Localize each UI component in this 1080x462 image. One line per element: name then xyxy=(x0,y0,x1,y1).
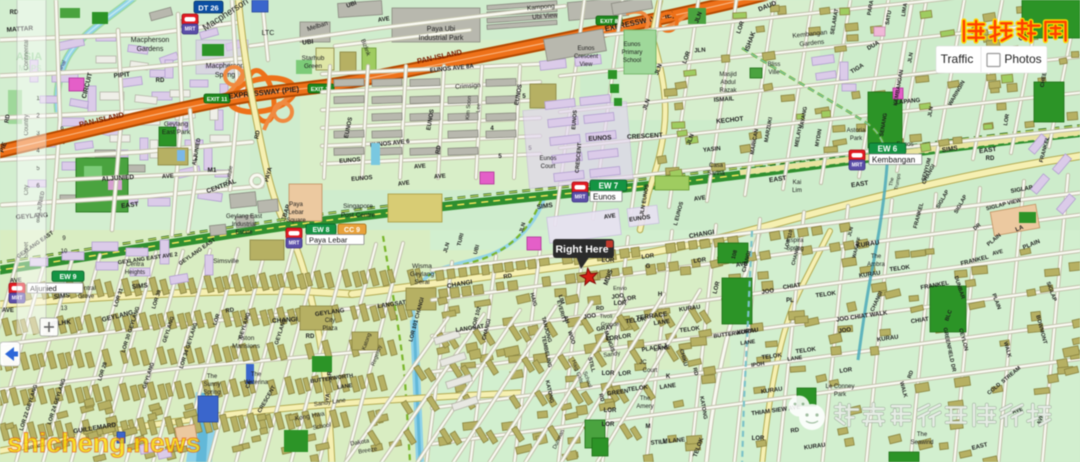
svg-text:EW 9: EW 9 xyxy=(59,274,76,281)
svg-text:Sunny: Sunny xyxy=(203,382,220,388)
svg-text:Photos: Photos xyxy=(1004,52,1041,66)
svg-text:RD: RD xyxy=(596,306,604,312)
svg-text:LOR: LOR xyxy=(602,371,615,377)
svg-text:UBI: UBI xyxy=(302,38,314,46)
svg-text:JLN: JLN xyxy=(694,48,706,55)
svg-text:Primary: Primary xyxy=(622,50,643,56)
svg-text:RD: RD xyxy=(306,334,315,340)
svg-text:Lee: Lee xyxy=(476,103,483,113)
svg-text:MRT: MRT xyxy=(185,27,196,33)
svg-text:Abdul: Abdul xyxy=(720,80,735,86)
svg-text:G: G xyxy=(646,264,651,270)
svg-text:Paya Ubi: Paya Ubi xyxy=(427,26,456,33)
svg-text:13: 13 xyxy=(61,306,68,312)
svg-text:Mansions: Mansions xyxy=(232,343,261,350)
svg-text:MRT: MRT xyxy=(289,241,300,247)
svg-text:City: City xyxy=(24,185,30,195)
svg-text:Le Conney: Le Conney xyxy=(825,384,854,390)
svg-text:The: The xyxy=(640,396,651,402)
svg-text:MRT: MRT xyxy=(852,163,863,169)
svg-text:Country: Country xyxy=(24,114,30,135)
svg-text:CC 9: CC 9 xyxy=(344,227,360,234)
svg-text:Astoria: Astoria xyxy=(847,128,866,134)
svg-text:Crescent: Crescent xyxy=(574,54,598,60)
svg-text:Industrial: Industrial xyxy=(232,222,256,228)
svg-text:Court: Court xyxy=(643,368,658,374)
svg-text:Traffic: Traffic xyxy=(941,52,974,66)
svg-text:Post Centre: Post Centre xyxy=(341,212,376,219)
svg-text:Paya: Paya xyxy=(289,202,303,208)
svg-text:Eunos: Eunos xyxy=(539,156,556,162)
svg-text:Geylang: Geylang xyxy=(410,271,435,278)
svg-text:AVE: AVE xyxy=(434,173,446,180)
svg-text:Masjid: Masjid xyxy=(719,72,736,78)
svg-text:Kembangan: Kembangan xyxy=(872,156,915,165)
svg-text:Spring: Spring xyxy=(203,390,220,396)
svg-text:Continental: Continental xyxy=(24,40,30,70)
svg-text:AVE: AVE xyxy=(162,174,174,181)
svg-text:Kai: Kai xyxy=(793,180,802,186)
svg-text:LOR: LOR xyxy=(602,422,615,428)
svg-text:Estate: Estate xyxy=(235,230,253,236)
svg-text:Tivoli: Tivoli xyxy=(600,314,613,320)
svg-text:East Park: East Park xyxy=(162,129,191,136)
svg-text:Serai: Serai xyxy=(414,279,429,286)
svg-text:Green: Green xyxy=(304,63,322,70)
svg-text:K: K xyxy=(666,374,671,380)
svg-text:Eunos: Eunos xyxy=(593,193,616,202)
svg-text:Lim: Lim xyxy=(792,188,802,194)
svg-text:LTC: LTC xyxy=(262,30,275,37)
svg-text:Eunos: Eunos xyxy=(623,42,640,48)
svg-text:Wisma: Wisma xyxy=(412,263,432,270)
svg-text:DT 26: DT 26 xyxy=(198,4,218,13)
svg-text:EW 8: EW 8 xyxy=(312,227,329,234)
svg-text:Park: Park xyxy=(850,136,863,142)
svg-text:City: City xyxy=(325,318,335,324)
svg-text:Starhub: Starhub xyxy=(302,55,325,62)
svg-text:EXIT 11: EXIT 11 xyxy=(207,97,228,103)
svg-text:The: The xyxy=(251,372,262,378)
svg-text:LOR: LOR xyxy=(602,258,615,264)
svg-text:Park: Park xyxy=(834,392,847,398)
svg-text:Seawind: Seawind xyxy=(910,440,933,446)
svg-text:Singapore: Singapore xyxy=(343,203,373,210)
svg-text:Simsville: Simsville xyxy=(213,258,239,265)
svg-text:LOR: LOR xyxy=(752,436,765,442)
svg-text:Gardens: Gardens xyxy=(137,46,164,53)
svg-text:Court: Court xyxy=(541,164,556,170)
svg-text:Geylang: Geylang xyxy=(164,121,189,128)
svg-text:Razak: Razak xyxy=(719,88,737,94)
svg-text:RD: RD xyxy=(986,156,995,162)
svg-text:The: The xyxy=(917,432,928,438)
svg-text:Grove: Grove xyxy=(78,294,95,300)
svg-text:PL: PL xyxy=(786,298,794,304)
svg-text:LOR: LOR xyxy=(604,408,617,414)
svg-text:Ville: Ville xyxy=(768,70,780,76)
svg-text:Envio: Envio xyxy=(613,286,627,292)
svg-text:shicheng.news: shicheng.news xyxy=(7,428,201,458)
svg-text:M1: M1 xyxy=(207,167,216,174)
svg-text:Heights: Heights xyxy=(125,270,145,276)
svg-text:View: View xyxy=(580,62,594,68)
svg-text:Casa: Casa xyxy=(709,163,724,169)
svg-text:Square: Square xyxy=(286,218,306,224)
svg-text:Right Here: Right Here xyxy=(555,244,608,256)
svg-text:The: The xyxy=(207,374,218,380)
svg-text:10: 10 xyxy=(61,249,68,255)
svg-text:EW 6: EW 6 xyxy=(878,145,898,154)
svg-text:Sarina: Sarina xyxy=(707,171,725,177)
svg-text:Amery: Amery xyxy=(636,404,653,410)
svg-text:Paya Lebar: Paya Lebar xyxy=(309,236,348,245)
svg-text:Plaza: Plaza xyxy=(322,326,338,332)
svg-text:Lebar: Lebar xyxy=(288,210,303,216)
svg-text:EUNOS: EUNOS xyxy=(588,134,612,142)
svg-text:LOR: LOR xyxy=(614,301,627,307)
svg-text:Street: Street xyxy=(24,242,30,258)
svg-text:Eunos: Eunos xyxy=(577,46,594,52)
svg-text:School: School xyxy=(623,58,641,64)
svg-text:RD: RD xyxy=(156,78,165,84)
svg-text:AVE: AVE xyxy=(2,308,14,314)
svg-text:M: M xyxy=(646,424,651,430)
svg-text:H: H xyxy=(658,292,662,298)
svg-text:Geylang East: Geylang East xyxy=(226,214,262,220)
svg-text:AVE: AVE xyxy=(414,163,426,170)
svg-text:Centra: Centra xyxy=(126,262,145,268)
svg-text:EW 7: EW 7 xyxy=(599,182,619,191)
svg-text:Bliss: Bliss xyxy=(768,62,781,68)
svg-text:MRT: MRT xyxy=(575,195,586,201)
svg-text:Macpherson: Macpherson xyxy=(131,37,170,44)
svg-text:Ambra: Ambra xyxy=(867,262,885,268)
svg-text:Industrial Park: Industrial Park xyxy=(419,35,464,42)
svg-text:The: The xyxy=(871,254,882,260)
svg-text:JC: JC xyxy=(639,360,647,366)
